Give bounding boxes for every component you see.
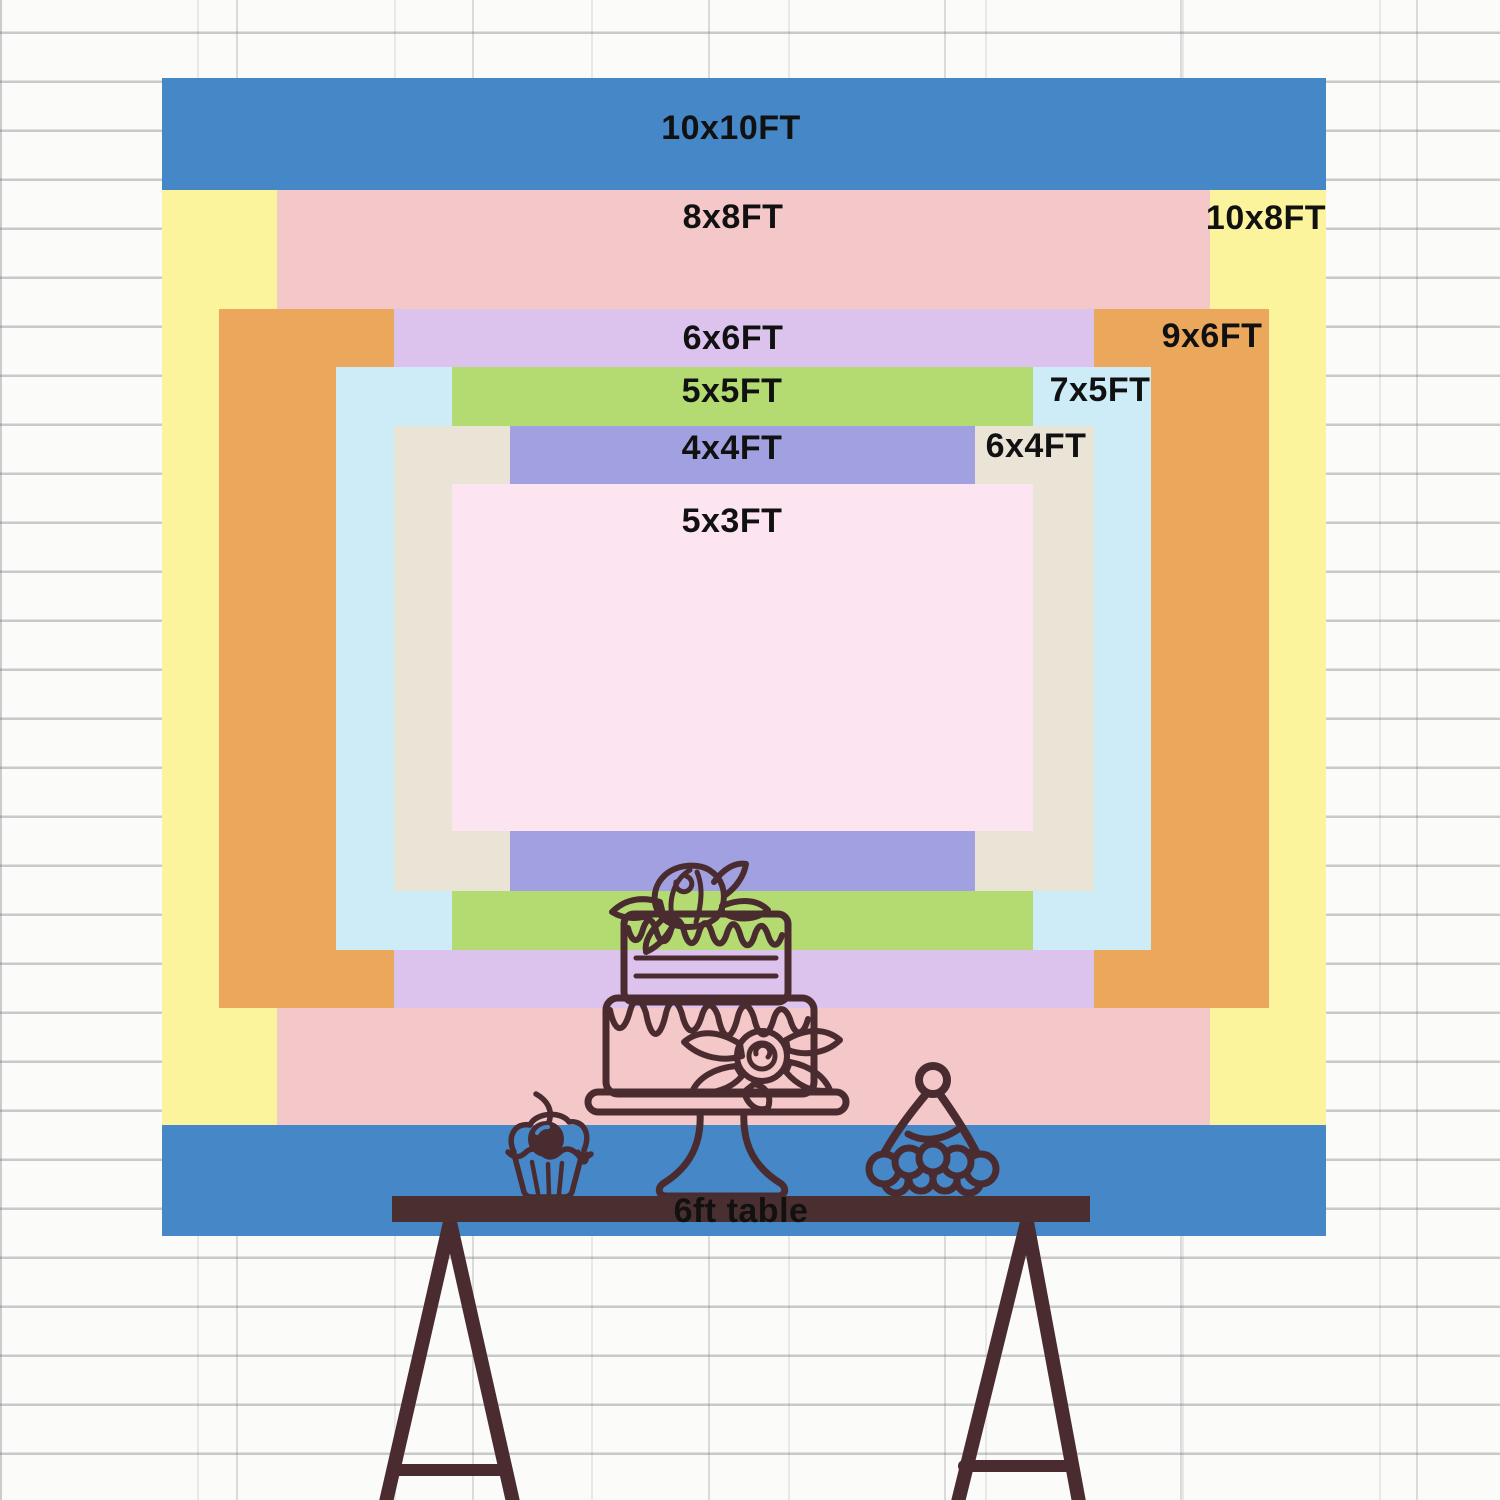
table-label: 6ft table: [674, 1194, 809, 1228]
table-legs: [386, 1222, 1079, 1500]
hat-ruffle: [869, 1144, 996, 1193]
cake-icon: [588, 864, 846, 1196]
backdrop-size-chart: 10x10FT 8x8FT 10x8FT 6x6FT 9x6FT 5x5FT 7…: [0, 0, 1500, 1500]
party-hat-icon: [869, 1066, 996, 1193]
line-art-layer: [0, 0, 1500, 1500]
cupcake-icon: [508, 1094, 591, 1197]
